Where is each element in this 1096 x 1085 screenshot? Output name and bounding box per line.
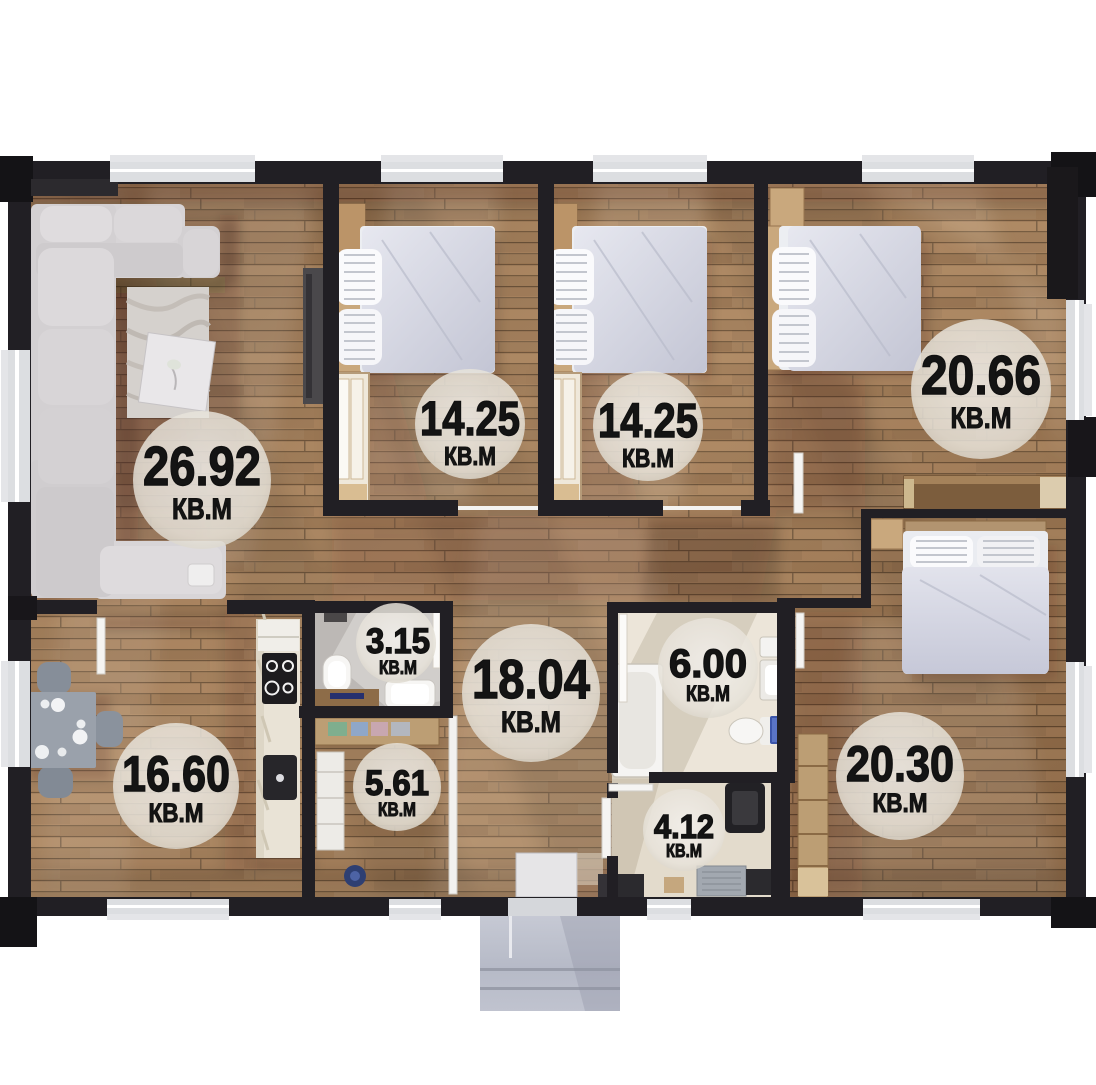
svg-text:18.04: 18.04 — [472, 648, 590, 710]
svg-text:КВ.М: КВ.М — [444, 441, 496, 471]
svg-text:КВ.М: КВ.М — [149, 798, 204, 828]
svg-text:4.12: 4.12 — [654, 808, 714, 845]
svg-text:14.25: 14.25 — [598, 395, 698, 448]
svg-text:КВ.М: КВ.М — [378, 800, 416, 821]
svg-text:КВ.М: КВ.М — [172, 493, 232, 526]
svg-text:14.25: 14.25 — [420, 393, 520, 446]
svg-text:КВ.М: КВ.М — [873, 788, 928, 818]
svg-text:20.30: 20.30 — [846, 736, 954, 792]
svg-text:КВ.М: КВ.М — [379, 658, 417, 679]
svg-text:КВ.М: КВ.М — [622, 443, 674, 473]
svg-text:26.92: 26.92 — [143, 435, 261, 497]
svg-text:КВ.М: КВ.М — [951, 402, 1012, 435]
svg-text:20.66: 20.66 — [921, 344, 1041, 406]
svg-text:16.60: 16.60 — [122, 746, 230, 802]
svg-text:КВ.М: КВ.М — [501, 706, 561, 739]
svg-text:КВ.М: КВ.М — [686, 681, 730, 706]
svg-text:6.00: 6.00 — [669, 642, 747, 686]
svg-text:5.61: 5.61 — [365, 764, 429, 803]
svg-text:КВ.М: КВ.М — [666, 841, 702, 861]
svg-text:3.15: 3.15 — [366, 622, 430, 661]
